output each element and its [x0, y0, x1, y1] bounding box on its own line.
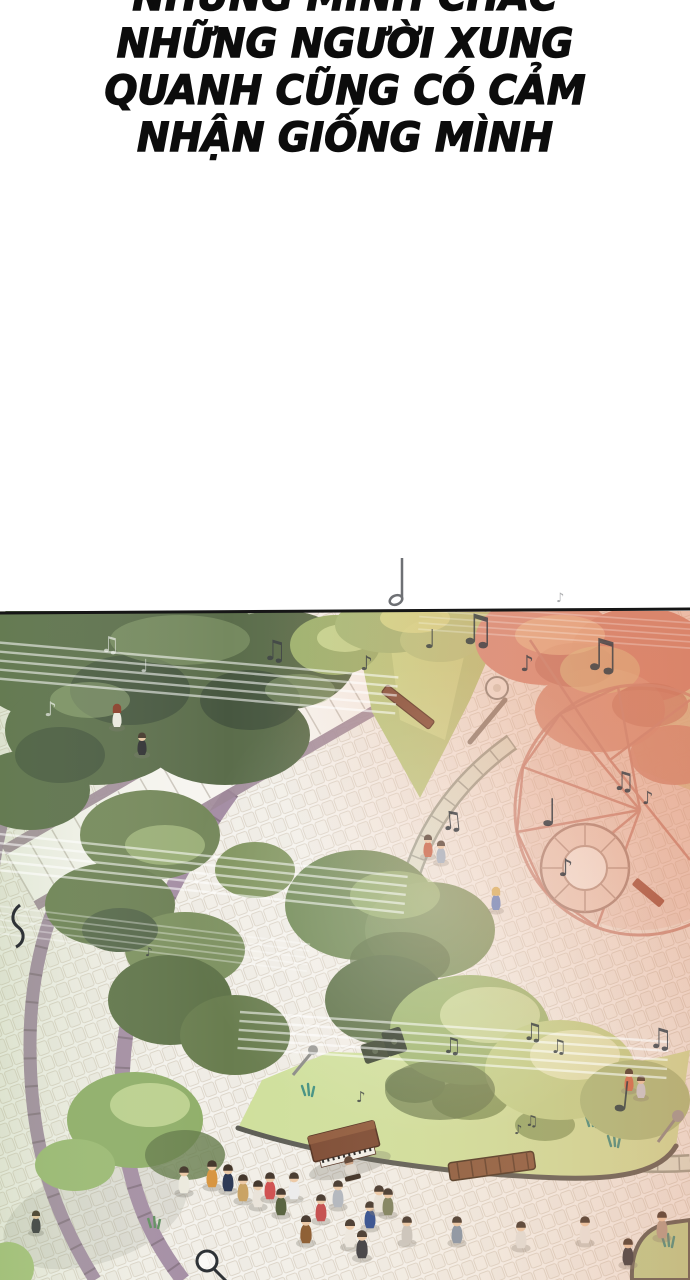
music-note-icon: ♫	[612, 767, 635, 797]
music-note-icon: ♪	[520, 652, 534, 677]
music-note-icon: ♩	[424, 625, 436, 655]
music-note-icon: ♫	[648, 1022, 673, 1055]
narration-text: NHƯNG MÌNH CHẮC NHỮNG NGƯỜI XUNG QUANH C…	[0, 0, 690, 162]
half-note-icon	[388, 558, 403, 607]
music-note-icon: ♩	[140, 656, 149, 677]
music-note-icon: ♪	[145, 945, 153, 959]
park-illustration-panel: ♫ ♩ ♪ ♫ ♪ ♩ ♫ ♫ ♫ ♫ ♪ ♫ ♪ ♪ ♪ ♩ ♫	[0, 540, 690, 1280]
music-note-icon: ♪	[356, 1088, 366, 1106]
music-note-icon: ♪	[44, 697, 57, 721]
music-note-icon: ♪	[642, 788, 654, 809]
music-note-icon: ♫	[442, 1034, 462, 1059]
music-note-icon: ♫	[458, 605, 496, 654]
narration-line-3: QUANH CŨNG CÓ CẢM	[10, 68, 679, 115]
narration-line-2: NHỮNG NGƯỜI XUNG	[10, 21, 679, 68]
music-note-icon: ♫	[525, 1112, 538, 1130]
music-note-icon: ♪	[556, 591, 564, 606]
light-haze	[190, 660, 670, 1140]
narration-line-1: NHƯNG MÌNH CHẮC	[10, 0, 679, 21]
music-note-icon: ♩	[540, 791, 558, 835]
music-note-icon: ♫	[522, 1018, 544, 1046]
music-note-icon: ♪	[514, 1123, 522, 1138]
music-note-icon: ♪	[558, 854, 573, 882]
music-note-icon: ♫	[438, 805, 464, 837]
music-note-icon: ♫	[100, 633, 120, 658]
webtoon-page: NHƯNG MÌNH CHẮC NHỮNG NGƯỜI XUNG QUANH C…	[0, 0, 690, 1280]
music-note-icon: ♫	[262, 634, 287, 667]
narration-line-4: NHẬN GIỐNG MÌNH	[10, 115, 679, 162]
music-note-icon: ♫	[582, 630, 621, 681]
music-note-icon: ♪	[360, 651, 373, 675]
music-note-icon: ♫	[550, 1036, 567, 1058]
